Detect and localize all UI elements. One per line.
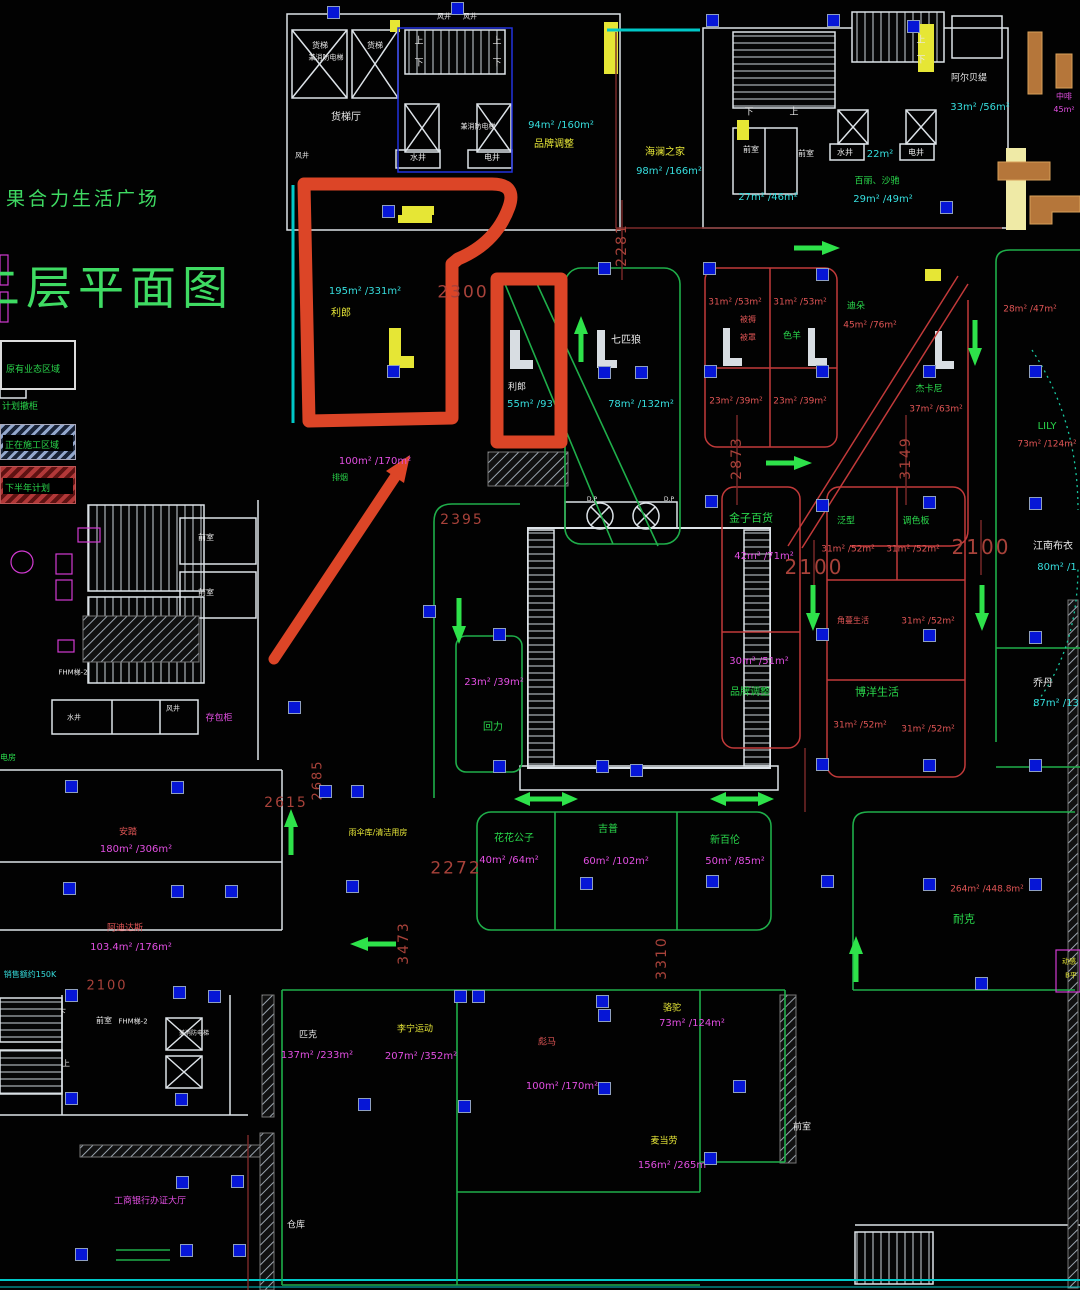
cad-label: 泛型: [837, 518, 855, 527]
cad-label: 品牌调整: [534, 140, 574, 150]
cad-label: 兼消防电梯: [461, 124, 496, 131]
cad-label: 23m² /39m²: [709, 398, 763, 407]
cad-label: 50m² /85m²: [705, 857, 765, 867]
fixture-square: [598, 262, 611, 275]
legend-label: 下半年计划: [5, 481, 50, 494]
cad-label: 吉普: [598, 825, 618, 835]
cad-label: 73m² /124m²: [659, 1019, 725, 1029]
cad-label: 麦当劳: [650, 1138, 677, 1147]
cad-label: 98m² /166m²: [636, 167, 702, 177]
cad-label: 风井: [463, 14, 477, 21]
cad-label: 品牌调整: [730, 688, 770, 698]
fixture-square: [75, 1248, 88, 1261]
fixture-square: [635, 366, 648, 379]
cad-label: 94m² /160m²: [528, 121, 594, 131]
cad-label: 31m² /52m²: [821, 546, 875, 555]
cad-label: 103.4m² /176m²: [90, 943, 172, 953]
annotation-highlight: [274, 184, 561, 659]
cad-label: 31m² /53m²: [708, 299, 762, 308]
fixture-square: [173, 986, 186, 999]
fixture-square: [423, 605, 436, 618]
fixture-square: [346, 880, 359, 893]
fixture-square: [596, 760, 609, 773]
cad-label: 电房: [0, 754, 16, 762]
fixture-square: [65, 1092, 78, 1105]
cad-label: 前室: [198, 534, 214, 542]
cad-label: 电井: [484, 154, 500, 162]
legend-item-existing: 原有业态区域: [0, 340, 76, 390]
fixture-square: [65, 989, 78, 1002]
cad-label: 排烟: [332, 474, 348, 482]
cad-label: 40m² /64m²: [479, 856, 539, 866]
cad-label: 调色板: [902, 518, 929, 527]
fixture-square: [706, 875, 719, 888]
cad-label: 137m² /233m²: [281, 1051, 353, 1061]
cad-label: 雨伞库/清洁用房: [349, 829, 408, 837]
cad-label: 3310: [655, 936, 669, 980]
cad-label: 存包柜: [205, 715, 232, 724]
cad-label: 上: [62, 1060, 70, 1068]
cad-label: 2100: [86, 980, 127, 993]
cad-label: 李宁运动: [397, 1026, 433, 1035]
cad-label: 江南布衣: [1033, 542, 1073, 552]
fixture-square: [175, 1093, 188, 1106]
cad-label: 色羊: [783, 333, 801, 342]
cad-label: 货梯: [367, 42, 383, 50]
cad-label: 被褥: [740, 316, 756, 324]
cad-label: 207m² /352m²: [385, 1052, 457, 1062]
cad-label: 阿迪达斯: [107, 925, 143, 934]
fixture-square: [816, 499, 829, 512]
cad-label: 水井: [67, 715, 81, 722]
fixture-square: [923, 629, 936, 642]
cad-label: 2272: [430, 861, 481, 878]
cad-label: 80m² /1: [1037, 563, 1076, 573]
cad-label: 下: [744, 109, 753, 118]
cad-label: 2395: [440, 513, 484, 527]
fixture-square: [923, 365, 936, 378]
fixture-square: [451, 2, 464, 15]
fixture-square: [233, 1244, 246, 1257]
legend-label: 原有业态区域: [6, 362, 60, 375]
cad-label: 风井: [437, 14, 451, 21]
fixture-square: [704, 1152, 717, 1165]
cad-label: 新百伦: [710, 836, 740, 846]
cad-label: 电井: [908, 149, 924, 157]
cad-floorplan-viewport: 果合力生活广场 二层平面图 原有业态区域 计划撤柜 正在施工区域 下半年计划 货…: [0, 0, 1080, 1290]
cad-label: 2873: [730, 436, 744, 480]
cad-label: 前室: [198, 589, 214, 597]
cad-label: 下: [916, 57, 925, 66]
cad-label: 60m² /102m²: [583, 857, 649, 867]
floorplan-linework: [0, 0, 1080, 1290]
fixture-square: [171, 781, 184, 794]
cad-label: B平: [1065, 973, 1077, 980]
cad-label: 下: [492, 60, 501, 69]
fixture-square: [923, 759, 936, 772]
fixture-square: [705, 495, 718, 508]
cad-label: FHM梯-2: [118, 1019, 147, 1026]
cad-label: 前室: [798, 150, 814, 158]
cad-label: 杰卡尼: [915, 386, 942, 395]
fixture-square: [358, 1098, 371, 1111]
cad-label: 2100: [952, 537, 1011, 557]
fixture-square: [180, 1244, 193, 1257]
fixture-square: [1029, 878, 1042, 891]
cad-label: 22m²: [867, 150, 893, 160]
cad-label: 45m²: [1053, 106, 1074, 114]
fixture-square: [975, 977, 988, 990]
cad-label: 水井: [837, 149, 853, 157]
fixture-square: [923, 878, 936, 891]
cad-label: 迪朵: [847, 303, 865, 312]
fixture-square: [63, 882, 76, 895]
cad-label: 仓库: [287, 1222, 305, 1231]
cad-label: 海澜之家: [645, 148, 685, 158]
fixture-square: [816, 365, 829, 378]
cad-label: 货梯厅: [331, 113, 361, 123]
cad-label: 阿尔贝缇: [951, 75, 987, 84]
cad-label: 动感: [1062, 959, 1076, 966]
fixture-square: [288, 701, 301, 714]
construction-hatch: [80, 452, 1078, 1290]
fixture-square: [907, 20, 920, 33]
cad-label: 角蔓生活: [837, 617, 869, 625]
fixture-square: [231, 1175, 244, 1188]
fixture-square: [208, 990, 221, 1003]
fixture-square: [1029, 497, 1042, 510]
cad-label: 78m² /132m²: [608, 400, 674, 410]
cad-label: 货梯: [312, 42, 328, 50]
fixture-square: [580, 877, 593, 890]
cad-label: 23m² /39m²: [464, 678, 524, 688]
fixture-square: [458, 1100, 471, 1113]
cad-label: 180m² /306m²: [100, 845, 172, 855]
sheet-title: 二层平面图: [0, 252, 234, 318]
cad-label: 金子百货: [729, 513, 773, 524]
cad-label: 31m² /52m²: [901, 618, 955, 627]
fixture-square: [351, 785, 364, 798]
cad-label: 87m² /13: [1033, 699, 1079, 709]
cad-label: 上: [916, 37, 925, 46]
fixture-square: [382, 205, 395, 218]
cad-label: 利郎: [331, 309, 351, 319]
cad-label: 前室: [743, 146, 759, 154]
fixture-square: [1029, 365, 1042, 378]
cad-label: 中啡: [1056, 93, 1072, 101]
legend-label: 正在施工区域: [5, 438, 59, 451]
cad-label: 28m² /47m²: [1003, 306, 1057, 315]
fixture-square: [319, 785, 332, 798]
fixture-square: [176, 1176, 189, 1189]
cad-label: 264m² /448.8m²: [950, 886, 1024, 895]
cad-label: 27m² /46m²: [738, 193, 798, 203]
cad-label: 兼消防电梯: [179, 1031, 209, 1037]
cad-label: 3473: [397, 921, 411, 965]
cad-label: FHM梯-2: [58, 670, 87, 677]
cad-label: 30m² /51m²: [729, 657, 789, 667]
fixture-square: [733, 1080, 746, 1093]
cad-label: 水井: [410, 154, 426, 162]
fixture-square: [923, 496, 936, 509]
cad-label: 彪马: [538, 1039, 556, 1048]
cad-label: 回力: [483, 723, 503, 733]
fixture-square: [171, 885, 184, 898]
fixture-square: [387, 365, 400, 378]
cad-label: 工商银行办证大厅: [114, 1198, 186, 1207]
cad-label: 55m² /93: [507, 400, 553, 410]
cad-label: 31m² /52m²: [886, 546, 940, 555]
cad-label: 博洋生活: [855, 687, 899, 698]
cad-label: 23m² /39m²: [773, 398, 827, 407]
cad-label: 耐克: [953, 914, 975, 925]
fixture-square: [225, 885, 238, 898]
cad-label: 前室: [793, 1124, 811, 1133]
cad-label: 上: [492, 38, 501, 47]
fixture-square: [704, 365, 717, 378]
cad-label: 2615: [264, 796, 308, 810]
cad-label: 33m² /56m²: [950, 103, 1010, 113]
fixture-square: [1029, 759, 1042, 772]
cad-label: 骆驼: [663, 1005, 681, 1014]
fixture-square: [598, 1082, 611, 1095]
cad-label: LILY: [1038, 422, 1057, 432]
fixture-square: [598, 1009, 611, 1022]
fixture-square: [703, 262, 716, 275]
cad-label: 2281: [615, 223, 629, 267]
cad-label: 31m² /53m²: [773, 299, 827, 308]
cad-label: 百丽、沙驰: [854, 178, 899, 187]
cad-label: 2100: [785, 557, 844, 577]
cad-label: 被罩: [740, 334, 756, 342]
fixture-square: [493, 760, 506, 773]
cad-label: 100m² /170m²: [339, 457, 411, 467]
fixture-square: [940, 201, 953, 214]
fixture-square: [1029, 631, 1042, 644]
fixture-square: [821, 875, 834, 888]
cad-label: 195m² /331m²: [329, 287, 401, 297]
cad-label: 利郎: [508, 384, 526, 393]
cad-label: 100m² /170m²: [526, 1082, 598, 1092]
cad-label: 兼消防电梯: [309, 55, 344, 62]
cad-label: 上: [414, 38, 423, 47]
fixture-square: [816, 268, 829, 281]
fixture-square: [598, 366, 611, 379]
cad-label: 156m² /265m²: [638, 1161, 710, 1171]
fixture-square: [327, 6, 340, 19]
cad-label: 前室: [96, 1017, 112, 1025]
cad-label: 31m² /52m²: [833, 722, 887, 731]
legend-item-under-construction: 正在施工区域: [0, 424, 76, 460]
cad-label: 乔丹: [1033, 679, 1053, 689]
fixture-square: [816, 628, 829, 641]
fixture-square: [493, 628, 506, 641]
cad-label: 销售额约150K: [4, 971, 57, 979]
cad-label: 七匹狼: [611, 336, 641, 346]
cad-label: 37m² /63m²: [909, 406, 963, 415]
cad-label: 风井: [166, 706, 180, 713]
cad-label: 31m² /52m²: [901, 726, 955, 735]
cad-label: 45m² /76m²: [843, 322, 897, 331]
fixture-square: [65, 780, 78, 793]
cad-label: 上: [789, 109, 798, 118]
cad-label: 下: [58, 1009, 66, 1017]
cad-label: 29m² /49m²: [853, 195, 913, 205]
cad-label: 下: [414, 60, 423, 69]
cad-label: D.P: [664, 497, 674, 503]
cad-label: D.P: [587, 497, 597, 503]
legend-label: 计划撤柜: [2, 399, 38, 412]
cad-label: 3149: [899, 436, 913, 480]
cad-label: 2300: [437, 285, 488, 302]
cad-label: 73m² /124m²: [1017, 441, 1076, 450]
cad-label: 风井: [295, 153, 309, 160]
project-title: 果合力生活广场: [6, 184, 160, 211]
fixture-square: [706, 14, 719, 27]
fixture-square: [630, 764, 643, 777]
fixture-square: [816, 758, 829, 771]
legend-item-second-half-plan: 下半年计划: [0, 466, 76, 504]
legend-item-planned-removal: 计划撤柜: [0, 396, 76, 412]
cad-label: 匹克: [299, 1032, 317, 1041]
fixture-square: [596, 995, 609, 1008]
fixture-square: [827, 14, 840, 27]
fixture-square: [472, 990, 485, 1003]
cad-label: 花花公子: [494, 834, 534, 844]
fixture-square: [454, 990, 467, 1003]
cad-label: 安踏: [119, 829, 137, 838]
annotation-arrow-shaft: [274, 477, 395, 659]
